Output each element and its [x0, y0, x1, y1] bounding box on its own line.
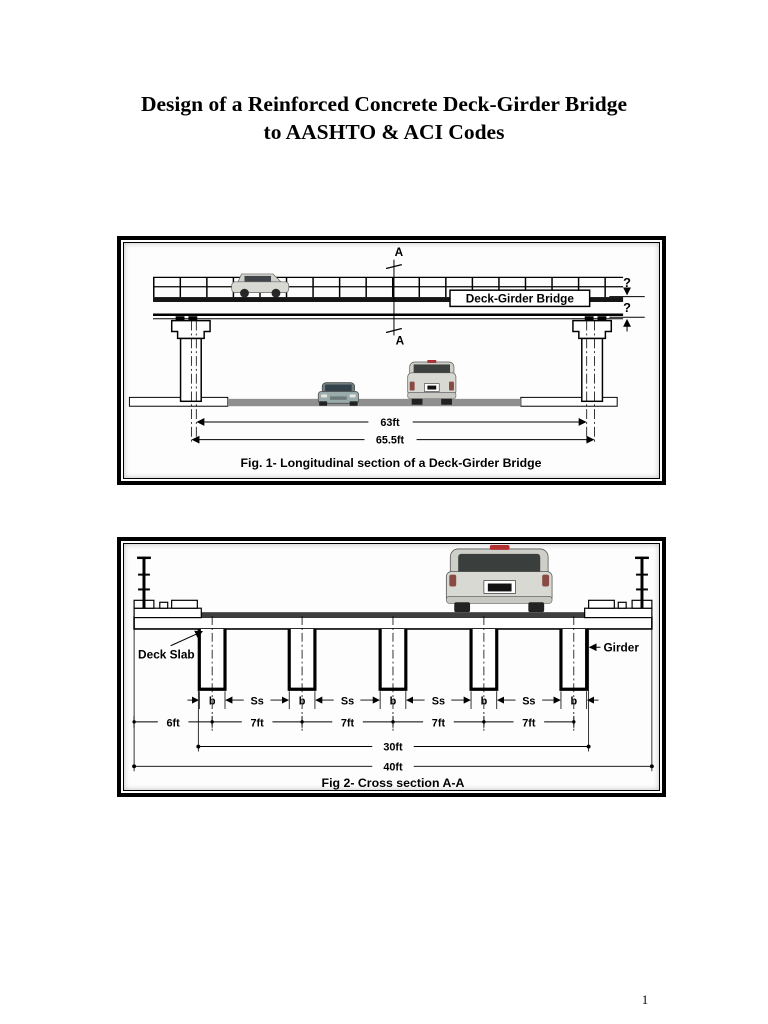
- spacing-label: Ss: [432, 695, 445, 707]
- dim-row-b-ss: b b b b b Ss Ss Ss Ss: [187, 691, 598, 709]
- page-title-line2: to AASHTO & ACI Codes: [0, 118, 768, 146]
- unknown-depth-dims: ? ?: [609, 275, 644, 331]
- section-label-top: A: [395, 245, 404, 259]
- pier-right: [573, 316, 611, 443]
- section-label-bottom: A: [396, 333, 405, 347]
- dim-row-spacings: 6ft 7ft 7ft 7ft 7ft: [132, 715, 575, 729]
- girders: [199, 616, 586, 731]
- girder-label-group: Girder: [590, 640, 640, 654]
- bridge-label: Deck-Girder Bridge: [466, 291, 575, 305]
- spacing-label: Ss: [522, 695, 535, 707]
- girder-width-label: b: [299, 695, 306, 707]
- girder-width-label: b: [570, 695, 577, 707]
- curb-right: [585, 556, 652, 617]
- vehicle-suv-rear: [408, 360, 456, 405]
- figure2-frame: Deck Slab Girder: [117, 537, 666, 797]
- unknown-depth-bottom: ?: [623, 300, 631, 315]
- dim-63ft: 63ft: [197, 417, 585, 429]
- page-title-line1: Design of a Reinforced Concrete Deck-Gir…: [0, 90, 768, 118]
- girder-width-label: b: [390, 695, 397, 707]
- bridge-label-box: Deck-Girder Bridge: [450, 290, 590, 306]
- dim-total-span-label: 65.5ft: [376, 435, 405, 447]
- edge-dim-label: 6ft: [166, 717, 180, 729]
- dim-clear-span-label: 63ft: [380, 417, 400, 429]
- figure1-frame: A A Deck-Girder Bridge ? ?: [117, 236, 666, 485]
- spacing-dim-label: 7ft: [250, 717, 264, 729]
- roof-marker: [490, 544, 510, 549]
- girder-label: Girder: [603, 640, 639, 654]
- dim-30ft: 30ft: [196, 740, 590, 753]
- spacing-dim-label: 7ft: [522, 717, 536, 729]
- dim-40ft: 40ft: [132, 759, 654, 772]
- figure2-caption: Fig 2- Cross section A-A: [322, 776, 465, 790]
- unknown-depth-top: ?: [623, 275, 631, 290]
- pier-left: [172, 316, 210, 443]
- ground-road: [129, 397, 617, 406]
- wearing-surface: [201, 612, 594, 617]
- spacing-dim-label: 7ft: [341, 717, 355, 729]
- girder-width-label: b: [209, 695, 216, 707]
- figure1-drawing: A A Deck-Girder Bridge ? ?: [124, 242, 659, 479]
- page-number: 1: [630, 993, 660, 1008]
- deck-slab-label: Deck Slab: [138, 647, 195, 661]
- deck-slab-label-group: Deck Slab: [138, 631, 202, 661]
- girder-width-label: b: [481, 695, 488, 707]
- dim-total-width-label: 40ft: [383, 761, 403, 773]
- figure1-caption: Fig. 1- Longitudinal section of a Deck-G…: [241, 456, 542, 470]
- spacing-dim-label: 7ft: [432, 717, 446, 729]
- dim-65p5ft: 65.5ft: [192, 435, 593, 447]
- license-plate: [488, 583, 512, 591]
- section-cut-line: A A: [386, 245, 405, 348]
- vehicle-suv-on-deck: [446, 544, 552, 611]
- vehicle-sedan-front: [318, 383, 358, 406]
- road-surface: [228, 399, 521, 406]
- figure2-drawing: Deck Slab Girder: [124, 543, 659, 792]
- dim-roadway-label: 30ft: [383, 741, 403, 753]
- page-title: Design of a Reinforced Concrete Deck-Gir…: [0, 90, 768, 146]
- spacing-label: Ss: [341, 695, 354, 707]
- spacing-label: Ss: [250, 695, 263, 707]
- curb-left: [134, 556, 201, 617]
